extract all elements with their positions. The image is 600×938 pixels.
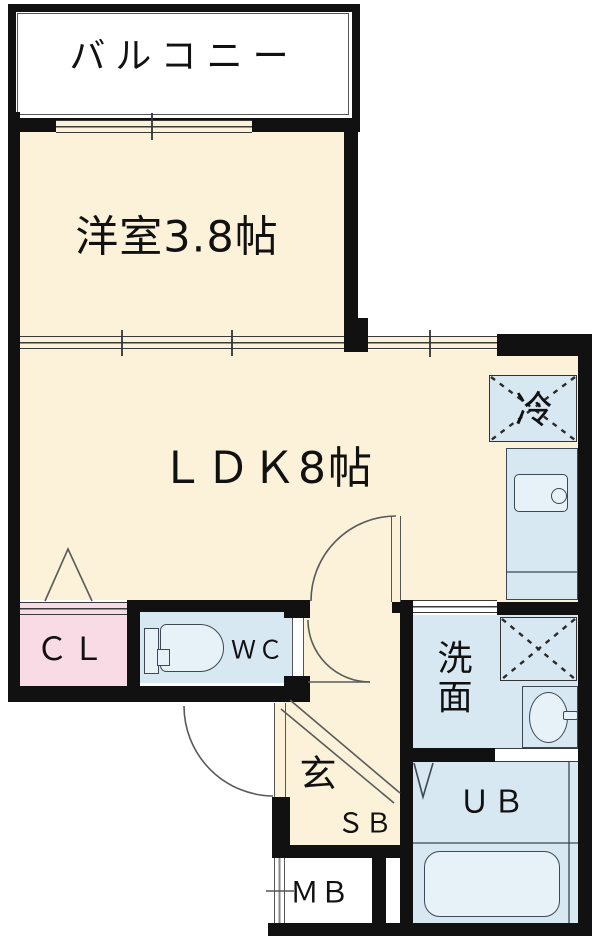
washing-machine-space-box bbox=[500, 617, 577, 681]
wall bbox=[283, 845, 413, 858]
floor-plan: バルコニー 洋室3.8帖 ＬＤＫ8帖 冷 ＣＬ ＷＣ 洗 面 玄 ＳＢ ＵＢ Ｍ… bbox=[0, 0, 600, 938]
toilet-seat-hinge-icon bbox=[157, 649, 170, 666]
closet-label: ＣＬ bbox=[36, 633, 108, 665]
wall bbox=[372, 858, 386, 923]
ldk-window bbox=[368, 336, 497, 349]
wall bbox=[497, 602, 592, 615]
wall bbox=[344, 118, 358, 352]
wall bbox=[284, 600, 310, 618]
western-room-label: 洋室3.8帖 bbox=[75, 217, 278, 260]
entrance-label: 玄 bbox=[300, 756, 337, 793]
refrigerator-label: 冷 bbox=[515, 391, 553, 429]
balcony-window bbox=[56, 120, 252, 133]
ldk-label: ＬＤＫ8帖 bbox=[160, 447, 374, 491]
unit-bath-label: ＵＢ bbox=[459, 788, 527, 819]
bath-window bbox=[495, 748, 578, 762]
wall bbox=[127, 600, 310, 612]
wall bbox=[400, 603, 413, 933]
wall bbox=[272, 797, 290, 858]
kitchen-counter bbox=[506, 448, 578, 600]
wall bbox=[8, 686, 310, 702]
washstand-tap-icon bbox=[563, 711, 578, 720]
wc-label: ＷＣ bbox=[231, 638, 285, 663]
kitchen-faucet-icon bbox=[551, 488, 567, 504]
wall bbox=[8, 112, 20, 702]
hallway bbox=[300, 600, 400, 703]
washroom-label-char1: 洗 bbox=[437, 643, 472, 678]
bathtub-icon bbox=[424, 851, 560, 917]
shoe-box-label: ＳＢ bbox=[337, 811, 393, 838]
wall bbox=[344, 318, 368, 352]
meter-box-door bbox=[274, 858, 285, 923]
wall bbox=[8, 118, 56, 132]
wall bbox=[268, 923, 592, 936]
wall bbox=[578, 334, 592, 936]
entrance-door-leaf bbox=[274, 703, 286, 797]
room-partition-sliding-door bbox=[20, 336, 344, 349]
entrance-door-swing-arc bbox=[184, 706, 273, 796]
closet-door-track bbox=[20, 602, 127, 615]
balcony-label: バルコニー bbox=[69, 39, 298, 75]
ldk-door-leaf bbox=[391, 516, 401, 602]
wall bbox=[127, 600, 140, 686]
washroom-sliding-door bbox=[413, 600, 497, 613]
meter-box-label: ＭＢ bbox=[290, 879, 350, 908]
washroom-label-char2: 面 bbox=[437, 682, 472, 717]
wall bbox=[400, 748, 495, 762]
wc-door-panel bbox=[292, 618, 304, 676]
